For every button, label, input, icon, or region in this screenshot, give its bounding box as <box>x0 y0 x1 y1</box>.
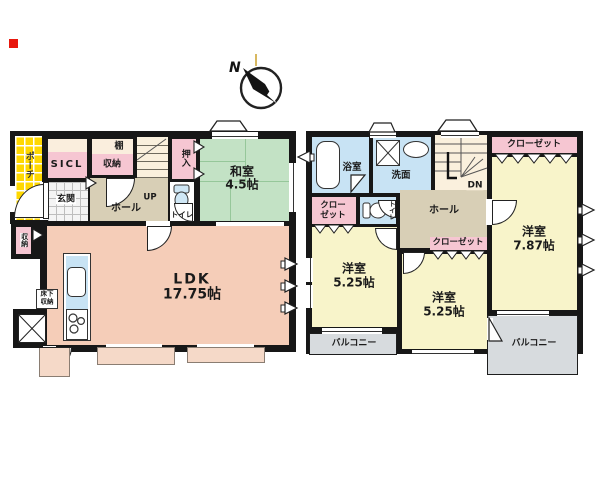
terrace <box>187 347 265 363</box>
sink-basin <box>403 141 429 158</box>
casement-window-icon <box>576 232 596 248</box>
bay-window-icon <box>368 122 397 133</box>
label-oshiire: 押入 <box>179 149 188 167</box>
compass-icon: N <box>228 54 292 118</box>
label-toilet-1f: トイレ <box>171 211 194 219</box>
window <box>441 132 479 138</box>
window <box>322 328 382 334</box>
folding-door-icon <box>85 176 98 190</box>
label-porch: ポーチ <box>23 152 32 179</box>
room-sicl-shelf <box>48 139 87 152</box>
label-washitsu-size: 4.5帖 <box>225 179 258 192</box>
label-side-storage: 収納 <box>20 233 27 247</box>
terrace <box>97 347 175 365</box>
casement-window-icon <box>576 262 596 278</box>
room-shelf <box>92 139 133 154</box>
label-balcony-right: バルコニー <box>512 339 557 348</box>
label-west-right: 洋室 <box>522 226 546 239</box>
label-west-mid: 洋室 <box>432 292 456 305</box>
label-dn: DN <box>466 181 483 190</box>
label-closet-top: クローゼット <box>507 140 561 149</box>
kitchen-sink <box>67 267 86 297</box>
front-door-leaf <box>43 182 49 219</box>
label-underfloor-1: 床下 <box>41 291 54 298</box>
label-genkan: 玄関 <box>56 195 76 204</box>
red-marker <box>9 39 18 48</box>
label-hall-2f: ホール <box>429 206 459 217</box>
window <box>497 311 549 316</box>
window <box>289 163 296 212</box>
label-hall-1f: ホール <box>111 204 141 215</box>
washing-machine-icon <box>376 140 400 166</box>
label-closet-mid: クローゼット <box>432 239 483 248</box>
label-ldk-size: 17.75帖 <box>163 288 221 303</box>
label-up: UP <box>143 194 156 203</box>
bathtub <box>316 141 340 189</box>
label-toilet-2f: トイレ <box>388 200 395 220</box>
window <box>212 132 258 139</box>
label-closet-left-2: ゼット <box>320 212 346 221</box>
bay-window-icon <box>437 119 479 132</box>
folding-door-icon <box>494 153 576 164</box>
label-storage-1f: 収納 <box>103 160 121 169</box>
label-washitsu: 和室 <box>230 166 254 179</box>
folding-door-icon <box>431 250 486 260</box>
bay-window-icon <box>209 120 249 132</box>
label-west-left: 洋室 <box>342 263 366 276</box>
kitchen-stove-icon <box>66 309 88 340</box>
label-west-right-size: 7.87帖 <box>513 240 555 253</box>
casement-window-icon <box>296 149 316 165</box>
label-closet-left-1: クロー <box>320 202 346 211</box>
refrigerator-space-icon <box>18 314 46 343</box>
window <box>412 350 474 355</box>
casement-window-icon <box>279 278 299 294</box>
label-senmen: 洗面 <box>391 171 410 181</box>
casement-window-icon <box>279 256 299 272</box>
window <box>306 285 313 308</box>
label-balcony-left: バルコニー <box>332 339 377 348</box>
label-ldk: LDK <box>173 273 210 288</box>
folding-door-icon <box>32 228 45 242</box>
casement-window-icon <box>576 202 596 218</box>
balcony-door-icon <box>488 317 504 343</box>
window <box>306 258 313 282</box>
label-west-left-size: 5.25帖 <box>333 277 375 290</box>
sliding-door-icon <box>193 140 206 154</box>
sliding-door-icon <box>193 167 206 181</box>
back-door-step <box>39 348 70 377</box>
label-shelf: 棚 <box>114 142 123 151</box>
floorplan-canvas: N <box>0 0 600 500</box>
folding-door-icon <box>313 224 355 234</box>
bath-door-icon <box>350 174 368 194</box>
casement-window-icon <box>279 300 299 316</box>
compass-north-label: N <box>229 60 241 76</box>
label-bath: 浴室 <box>342 163 361 173</box>
label-west-mid-size: 5.25帖 <box>423 306 465 319</box>
washitsu-ldk-opening <box>216 222 284 226</box>
label-sicl: SICL <box>51 160 84 171</box>
label-underfloor-2: 収納 <box>41 299 54 306</box>
